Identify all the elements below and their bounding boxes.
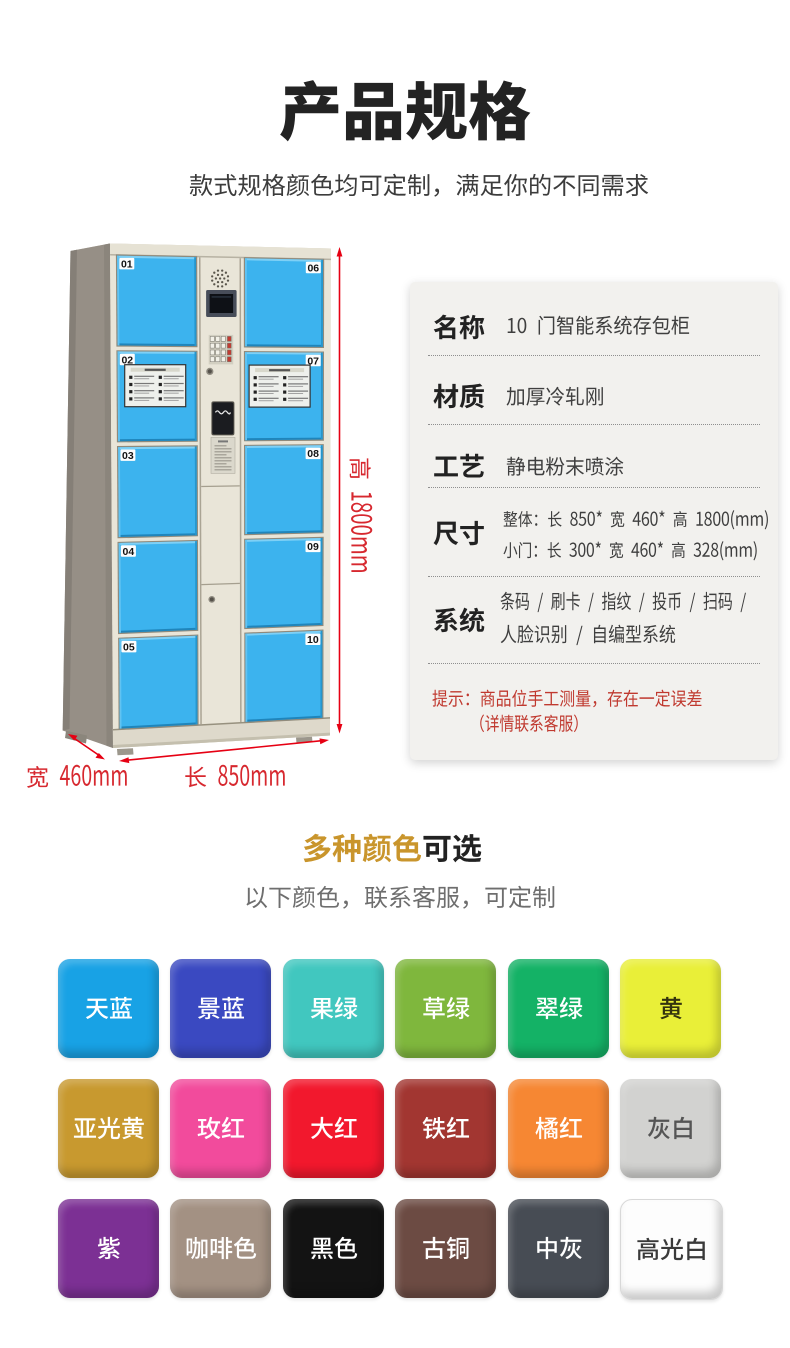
- svg-text:10: 10: [307, 634, 319, 646]
- svg-text:04: 04: [123, 546, 135, 558]
- svg-text:05: 05: [123, 642, 135, 654]
- svg-text:06: 06: [307, 262, 319, 274]
- svg-text:08: 08: [307, 448, 319, 460]
- svg-text:01: 01: [121, 259, 133, 271]
- svg-text:03: 03: [122, 450, 134, 462]
- svg-text:09: 09: [307, 541, 319, 553]
